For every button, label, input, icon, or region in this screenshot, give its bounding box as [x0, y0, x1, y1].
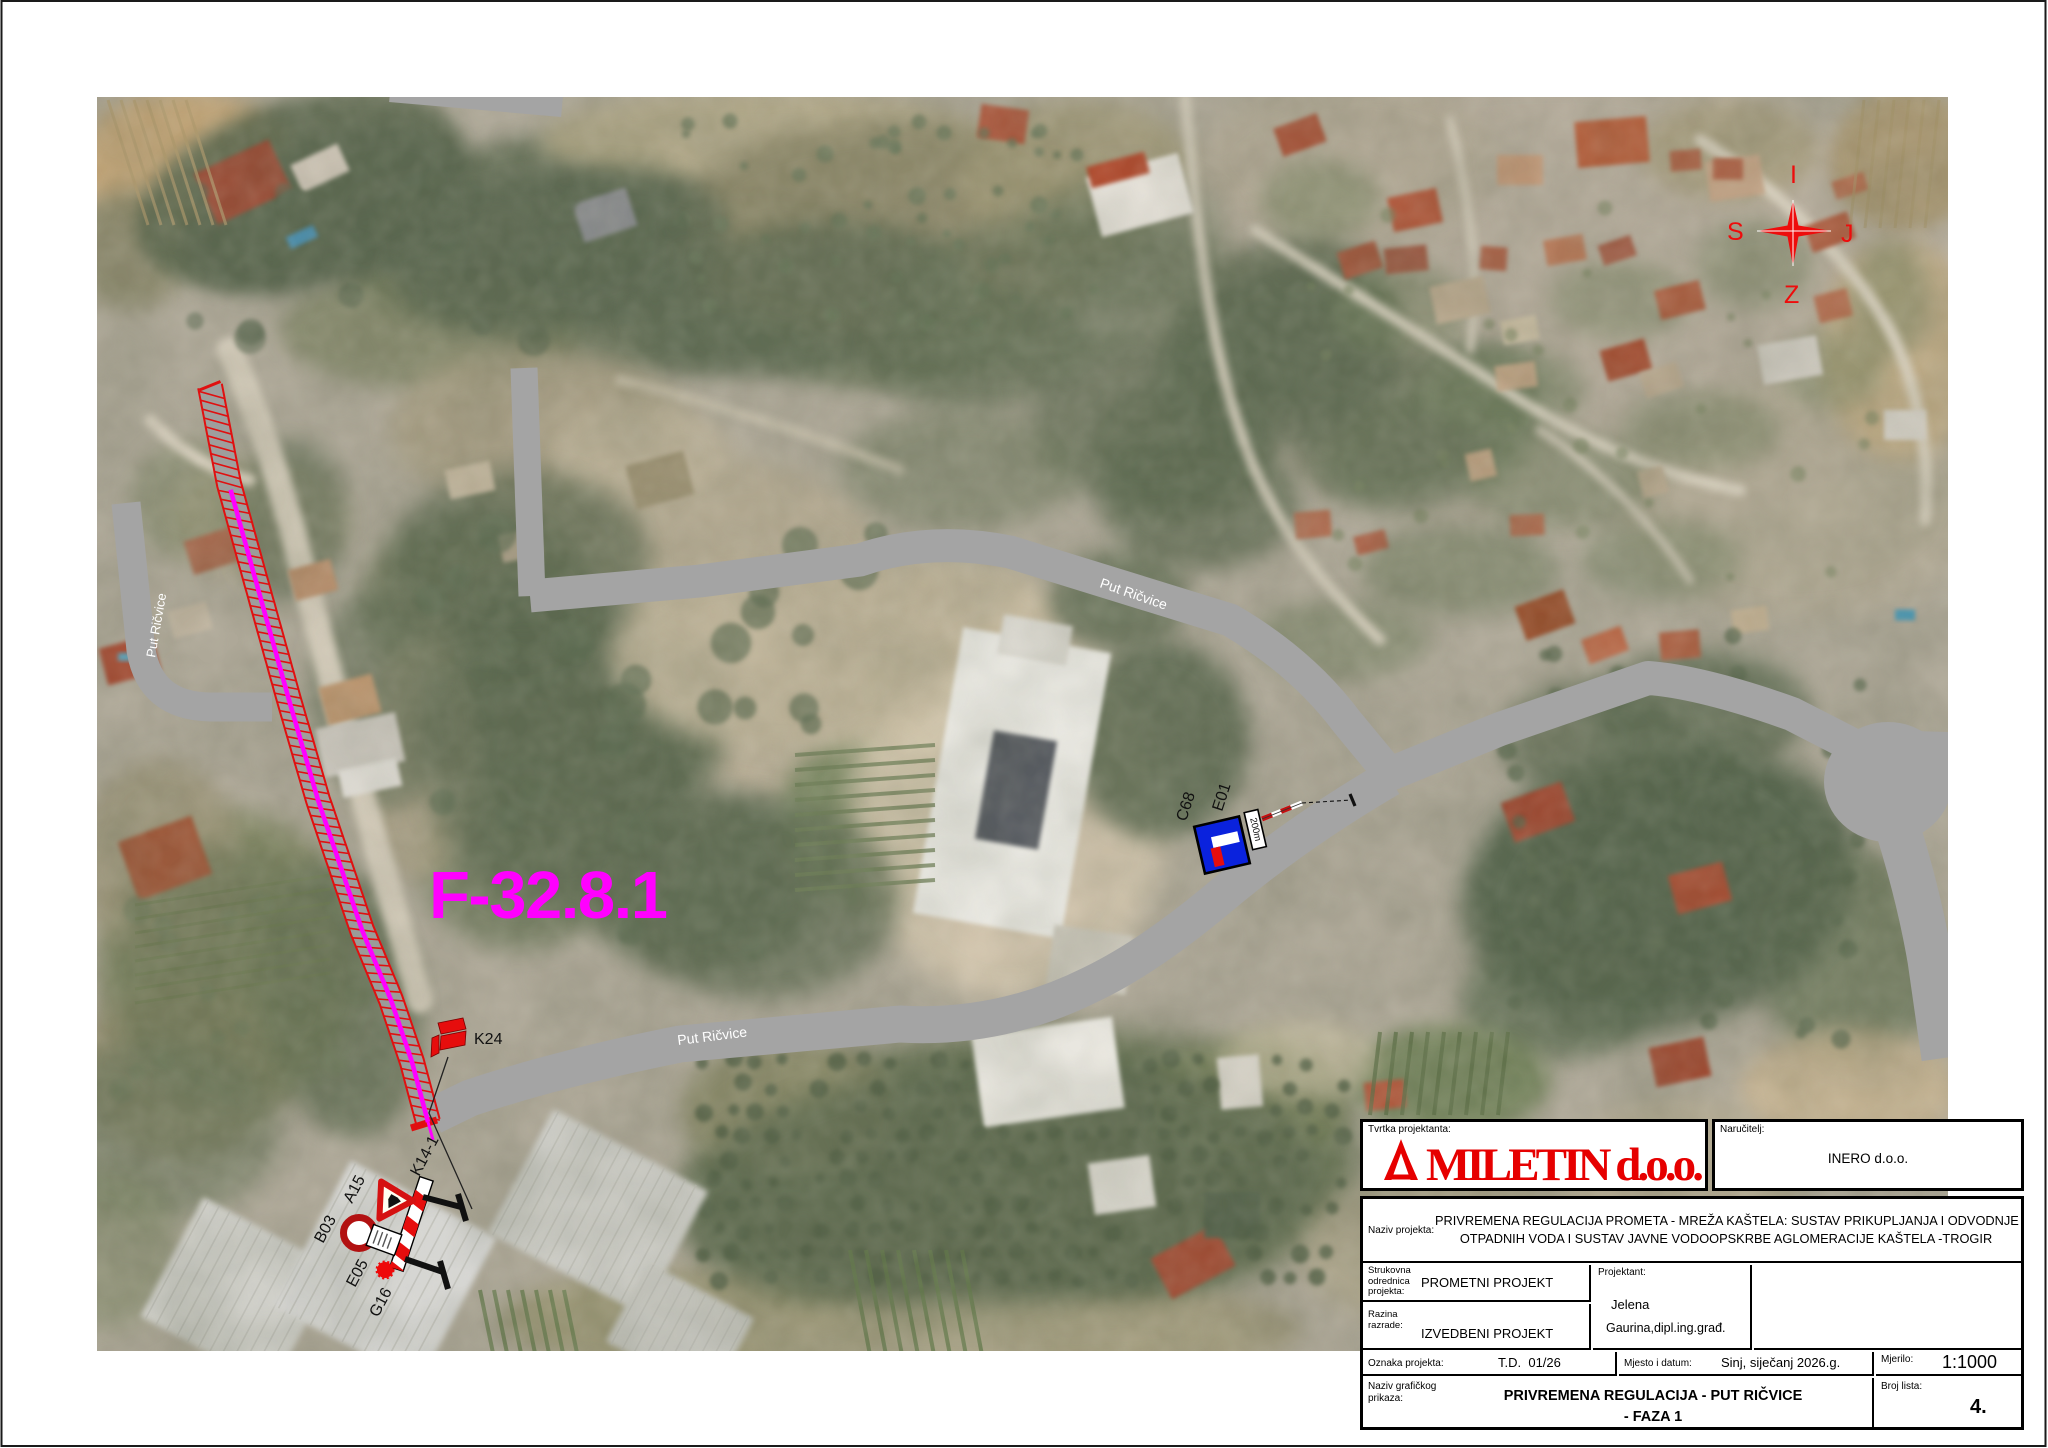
svg-text:J: J [1841, 220, 1854, 248]
svg-text:I: I [1790, 161, 1797, 189]
svg-text:MILETIN d.o.o.: MILETIN d.o.o. [1426, 1139, 1703, 1188]
svg-text:S: S [1727, 218, 1744, 246]
svg-text:K24: K24 [474, 1031, 503, 1048]
svg-text:F-32.8.1: F-32.8.1 [429, 858, 667, 933]
svg-text:Z: Z [1784, 281, 1799, 309]
